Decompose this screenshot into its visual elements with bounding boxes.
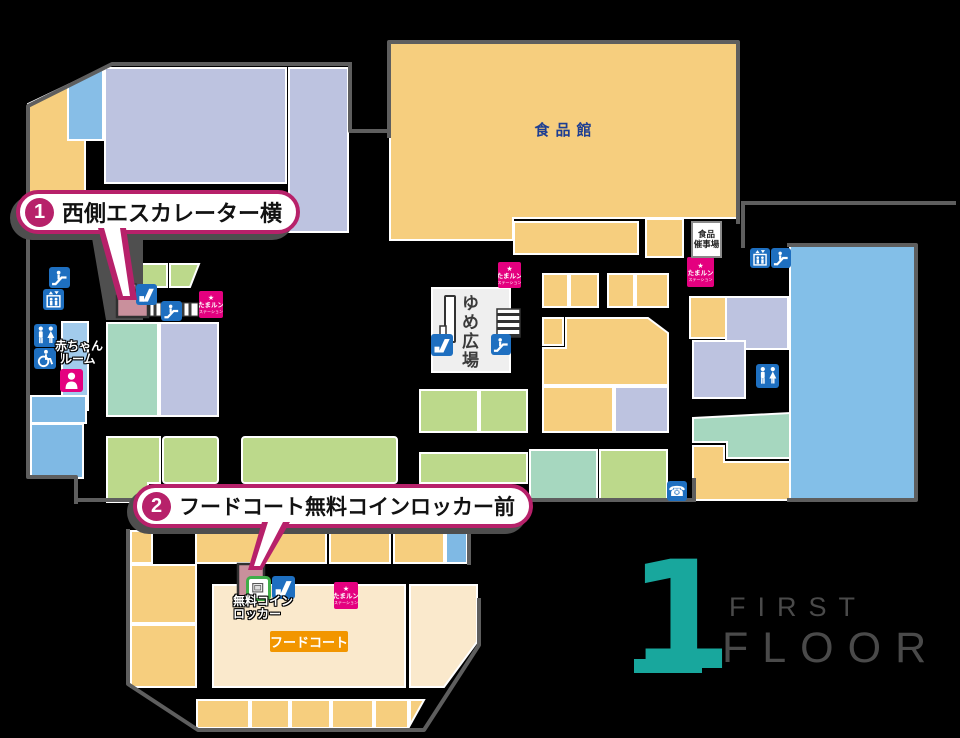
telephone-icon: ☎ — [667, 481, 687, 501]
baby-room-line2: ルーム — [55, 353, 103, 366]
tamarun-station-icon: ★ たまルン ステーション — [498, 262, 521, 288]
tamarun-sublabel: ステーション — [498, 280, 521, 285]
tamarun-sublabel: ステーション — [689, 277, 713, 282]
baby-room-icon — [60, 369, 83, 392]
store-block — [242, 437, 397, 483]
store-block — [291, 700, 330, 728]
tamarun-sublabel: ステーション — [199, 309, 223, 314]
food-event-space-label: 食品 催事場 — [691, 221, 722, 258]
food-event-line2: 催事場 — [693, 240, 720, 250]
store-block — [514, 222, 638, 254]
store-block — [600, 450, 667, 500]
store-block — [543, 274, 568, 307]
tamarun-mascot: ★ — [506, 266, 512, 273]
tamarun-label: たまルン — [199, 302, 223, 309]
tamarun-station-icon: ★ たまルン ステーション — [687, 257, 714, 287]
store-block — [197, 700, 249, 728]
callout-west-escalator: 1 西側エスカレーター横 — [16, 190, 300, 234]
tamarun-label: たまルン — [334, 593, 358, 600]
food-hall-block — [390, 43, 737, 240]
wheelchair-icon — [34, 348, 56, 369]
store-block — [615, 387, 668, 432]
store-block — [131, 625, 196, 687]
store-block — [131, 565, 196, 623]
restroom-icon — [34, 324, 57, 347]
store-block — [420, 453, 527, 483]
food-court-label: フードコート — [270, 631, 348, 652]
store-block — [332, 700, 373, 728]
callout-tail — [240, 520, 300, 572]
store-block — [646, 219, 683, 257]
store-block — [251, 700, 289, 728]
escalator-icon — [431, 334, 453, 356]
tamarun-mascot: ★ — [343, 586, 349, 593]
store-block — [570, 274, 598, 307]
store-block — [420, 390, 478, 432]
callout-tail — [90, 226, 150, 310]
stairs-icon — [497, 309, 520, 337]
escalator-icon — [49, 267, 70, 288]
store-block — [170, 264, 199, 287]
food-hall-label: 食品館 — [506, 119, 626, 140]
store-block — [131, 531, 152, 563]
tamarun-label: たまルン — [498, 273, 521, 280]
store-block — [543, 387, 613, 432]
yume-plaza-label: ゆめ広場 — [456, 294, 481, 372]
restroom-icon — [756, 364, 779, 388]
tamarun-mascot: ★ — [208, 295, 214, 302]
store-block — [375, 700, 408, 728]
callout-number-badge: 2 — [142, 492, 171, 521]
large-store-block — [790, 245, 916, 500]
tamarun-station-icon: ★ たまルン ステーション — [199, 291, 223, 318]
callout-label: 西側エスカレーター横 — [62, 196, 282, 228]
store-block — [160, 323, 218, 416]
telephone-glyph: ☎ — [668, 484, 685, 498]
store-block — [480, 390, 527, 432]
store-block — [446, 532, 467, 563]
floor-number-base-bar — [634, 659, 702, 673]
store-block — [163, 437, 218, 483]
escalator-icon — [491, 334, 511, 355]
store-block — [31, 396, 86, 423]
elevator-icon — [750, 248, 770, 268]
store-block — [690, 297, 726, 338]
callout-foodcourt-locker: 2 フードコート無料コインロッカー前 — [133, 484, 533, 528]
store-block — [31, 424, 83, 478]
escalator-icon — [771, 248, 791, 268]
callout-number-badge: 1 — [25, 198, 54, 227]
store-block — [330, 531, 390, 563]
elevator-icon — [43, 289, 64, 310]
escalator-icon — [161, 301, 182, 321]
tamarun-station-icon: ★ たまルン ステーション — [334, 582, 358, 609]
free-locker-line2: ロッカー — [233, 608, 293, 621]
store-block — [530, 450, 597, 500]
store-block — [693, 341, 745, 398]
store-block — [543, 318, 563, 345]
tamarun-label: たまルン — [688, 270, 714, 277]
store-block — [410, 700, 424, 725]
store-block — [608, 274, 634, 307]
store-block — [410, 585, 477, 687]
tamarun-sublabel: ステーション — [334, 600, 358, 605]
free-locker-label: 無料コイン ロッカー — [233, 595, 293, 621]
baby-room-label: 赤ちゃん ルーム — [55, 340, 103, 366]
tamarun-mascot: ★ — [697, 263, 703, 270]
callout-label: フードコート無料コインロッカー前 — [179, 491, 515, 521]
store-block — [107, 323, 158, 416]
floor-word-floor: FLOOR — [722, 624, 940, 673]
floor-word-first: FIRST — [729, 592, 867, 623]
store-block — [105, 68, 286, 183]
floor-map-1f: ☎ ★ たまルン ステーション ★ たまルン ステーション ★ たまルン ステー… — [0, 0, 960, 738]
store-block — [636, 274, 668, 307]
store-block — [394, 531, 444, 563]
